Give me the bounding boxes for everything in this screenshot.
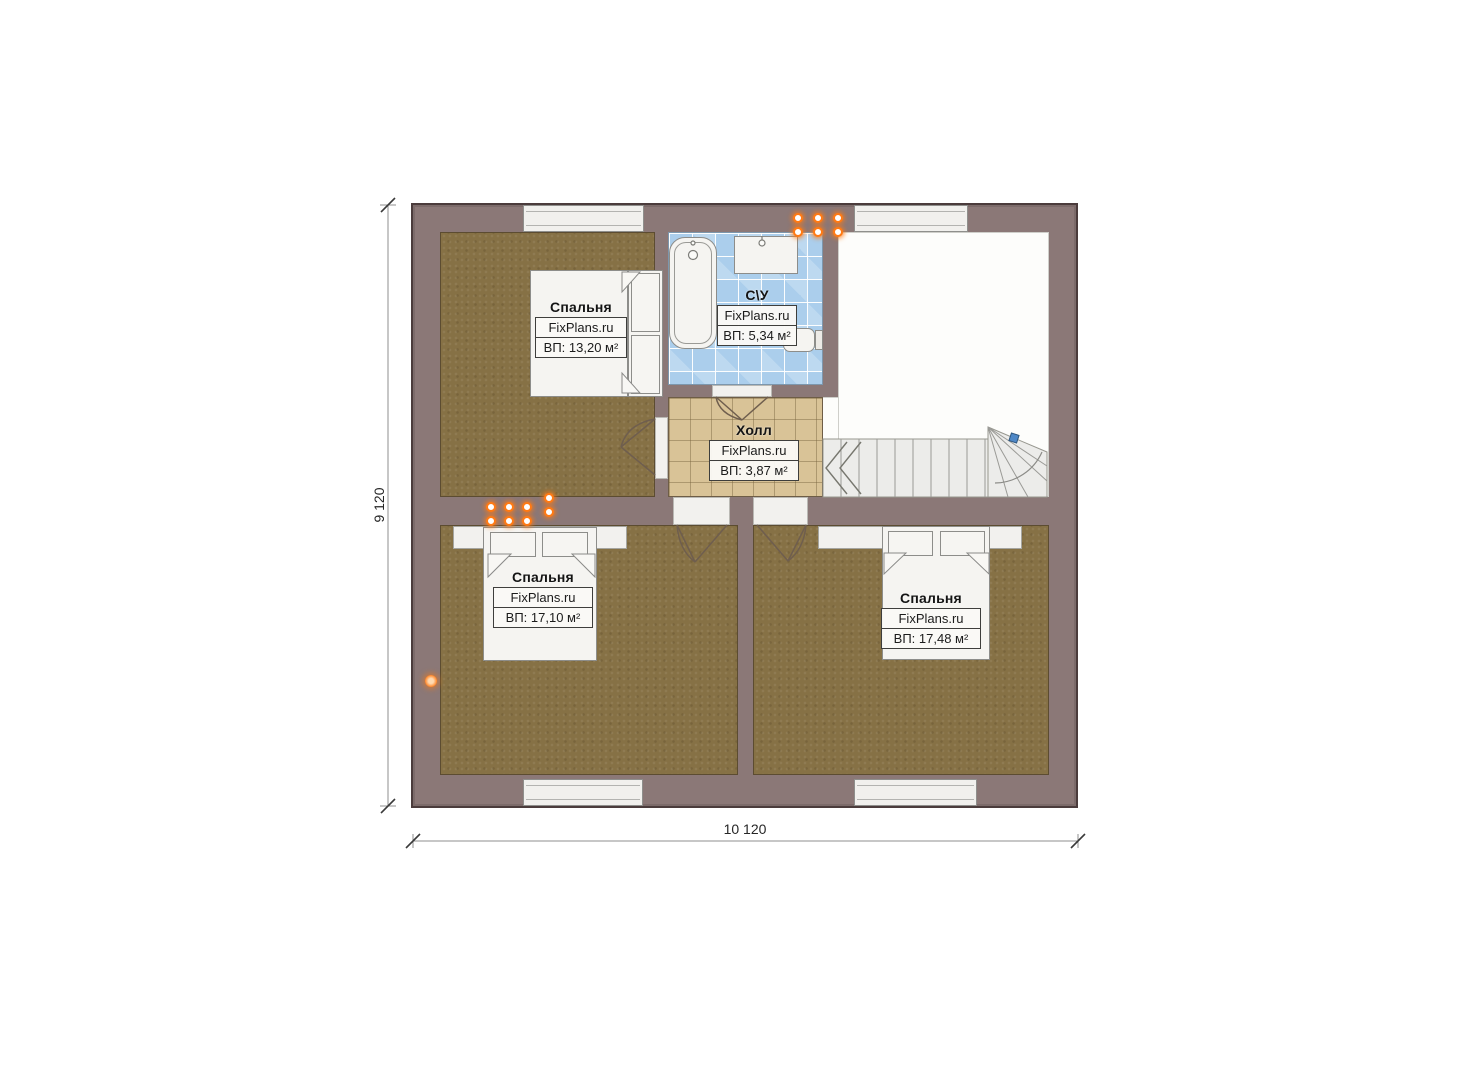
- room-label-bedroom-bottom-right: Спальня FixPlans.ru ВП: 17,48 м²: [881, 591, 981, 649]
- socket-icon: [521, 502, 533, 526]
- window-frame: [526, 785, 640, 800]
- pillow: [542, 532, 588, 557]
- outlet-dot-icon: [425, 675, 437, 687]
- room-brand: FixPlans.ru: [882, 609, 980, 628]
- room-name: Спальня: [900, 591, 962, 606]
- room-area: ВП: 13,20 м²: [536, 337, 626, 357]
- room-info-box: FixPlans.ru ВП: 5,34 м²: [717, 305, 797, 346]
- window-frame: [526, 211, 641, 226]
- door-opening-bedroom-bottom-left: [673, 497, 730, 525]
- room-info-box: FixPlans.ru ВП: 17,10 м²: [493, 587, 593, 628]
- room-area: ВП: 17,48 м²: [882, 628, 980, 648]
- window-bottom-right: [854, 779, 977, 806]
- room-label-bedroom-top-left: Спальня FixPlans.ru ВП: 13,20 м²: [535, 300, 627, 358]
- dimension-width-label: 10 120: [724, 821, 767, 837]
- room-brand: FixPlans.ru: [710, 441, 798, 460]
- toilet-tank: [815, 330, 823, 350]
- room-info-box: FixPlans.ru ВП: 3,87 м²: [709, 440, 799, 481]
- pillow: [940, 531, 985, 556]
- room-brand: FixPlans.ru: [718, 306, 796, 325]
- bathtub-icon: [669, 237, 717, 349]
- window-frame: [857, 785, 974, 800]
- pillow: [631, 273, 660, 332]
- room-area: ВП: 17,10 м²: [494, 607, 592, 627]
- socket-icon: [792, 213, 804, 237]
- room-info-box: FixPlans.ru ВП: 13,20 м²: [535, 317, 627, 358]
- dimension-vertical: 9 120: [371, 198, 396, 813]
- room-label-bedroom-bottom-left: Спальня FixPlans.ru ВП: 17,10 м²: [493, 570, 593, 628]
- pillow: [888, 531, 933, 556]
- room-name: Спальня: [512, 570, 574, 585]
- room-area: ВП: 5,34 м²: [718, 325, 796, 345]
- dimension-height-label: 9 120: [371, 487, 387, 522]
- floor-stairwell-strip: [823, 397, 839, 497]
- bathtub-rim: [674, 242, 712, 344]
- room-name: Холл: [736, 423, 772, 438]
- floor-plan-page: { "plan": { "dimensions": { "height_labe…: [0, 0, 1474, 1080]
- dimension-horizontal: 10 120: [406, 821, 1085, 848]
- room-name: Спальня: [550, 300, 612, 315]
- room-brand: FixPlans.ru: [536, 318, 626, 337]
- bed-top-left-headboard: [628, 270, 663, 397]
- room-brand: FixPlans.ru: [494, 588, 592, 607]
- socket-icon: [543, 493, 555, 517]
- window-frame: [857, 211, 965, 226]
- pillow: [490, 532, 536, 557]
- sink-counter: [734, 236, 798, 274]
- window-top-right: [854, 205, 968, 232]
- window-top-left: [523, 205, 644, 232]
- room-info-box: FixPlans.ru ВП: 17,48 м²: [881, 608, 981, 649]
- socket-icon: [832, 213, 844, 237]
- floor-stairwell: [838, 232, 1049, 497]
- room-name: С\У: [745, 288, 768, 303]
- door-opening-bathroom: [712, 385, 772, 397]
- room-label-hall: Холл FixPlans.ru ВП: 3,87 м²: [709, 423, 799, 481]
- window-bottom-left: [523, 779, 643, 806]
- socket-icon: [485, 502, 497, 526]
- floor-plan-walls: Спальня FixPlans.ru ВП: 13,20 м² С\У Fix…: [413, 205, 1076, 806]
- pillow: [631, 335, 660, 394]
- room-label-bathroom: С\У FixPlans.ru ВП: 5,34 м²: [717, 288, 797, 346]
- socket-icon: [503, 502, 515, 526]
- socket-icon: [812, 213, 824, 237]
- door-opening-bedroom-bottom-right: [753, 497, 808, 525]
- door-opening-bedroom-top-left: [655, 417, 668, 479]
- room-area: ВП: 3,87 м²: [710, 460, 798, 480]
